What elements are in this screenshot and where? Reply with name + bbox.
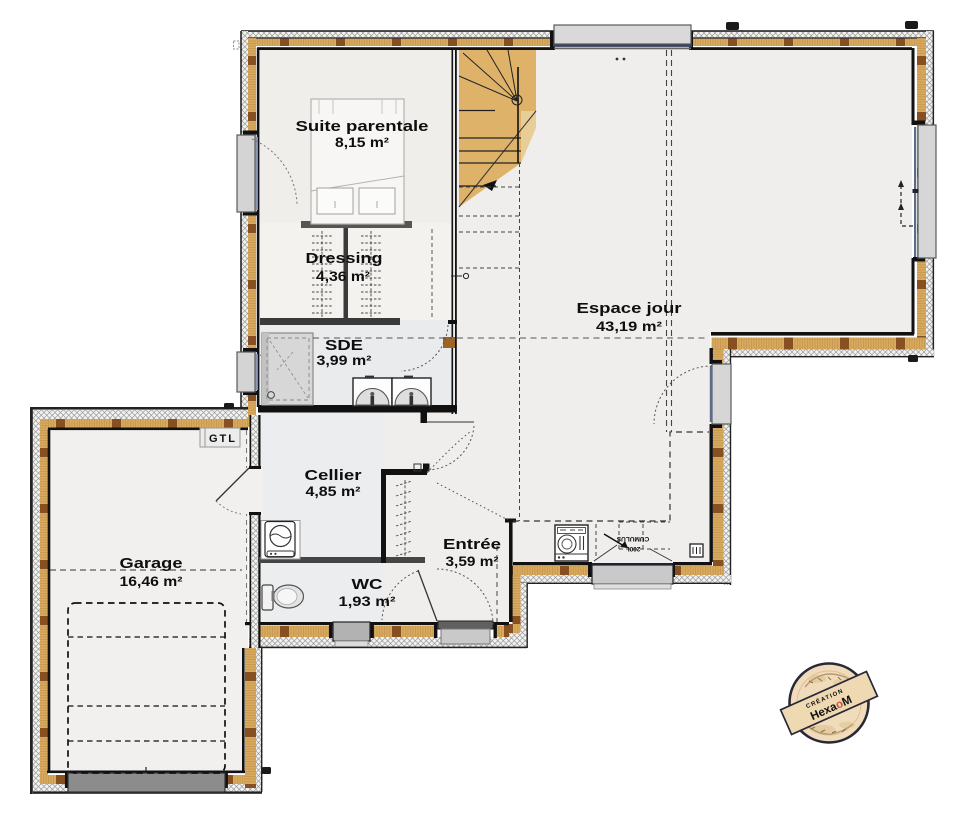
svg-text:3,59 m²: 3,59 m²: [446, 553, 499, 569]
svg-text:CUMULUS: CUMULUS: [616, 535, 649, 542]
svg-text:3,99 m²: 3,99 m²: [317, 352, 372, 368]
svg-text:Dressing: Dressing: [306, 250, 383, 267]
svg-text:1,93 m²: 1,93 m²: [339, 593, 396, 609]
svg-text:43,19 m²: 43,19 m²: [596, 318, 662, 334]
svg-text:Suite parentale: Suite parentale: [296, 118, 429, 135]
svg-text:Entrée: Entrée: [443, 536, 501, 553]
svg-text:GTL: GTL: [209, 433, 237, 445]
svg-text:Cellier: Cellier: [305, 467, 362, 484]
svg-text:200L: 200L: [626, 545, 641, 552]
svg-text:4,85 m²: 4,85 m²: [306, 483, 361, 499]
svg-text:WC: WC: [352, 576, 383, 593]
svg-text:Espace jour: Espace jour: [577, 300, 682, 317]
svg-text:16,46 m²: 16,46 m²: [120, 573, 183, 589]
svg-text:4,36 m²: 4,36 m²: [316, 268, 370, 284]
svg-text:Garage: Garage: [120, 555, 183, 572]
svg-text:8,15 m²: 8,15 m²: [335, 134, 389, 150]
